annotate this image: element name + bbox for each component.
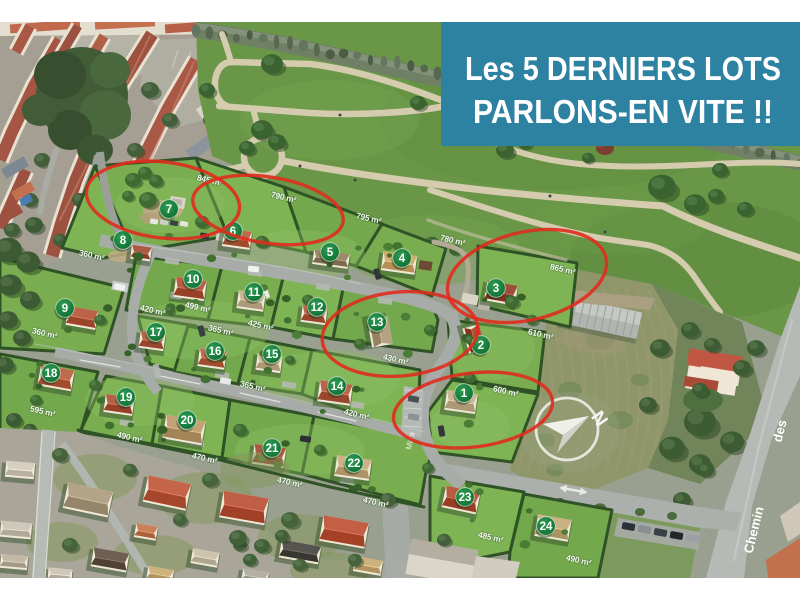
svg-text:24: 24 [540, 521, 553, 533]
svg-text:3: 3 [493, 283, 499, 295]
svg-text:17: 17 [150, 327, 163, 339]
svg-text:PARLONS-EN VITE !!: PARLONS-EN VITE !! [473, 93, 773, 130]
svg-text:10: 10 [187, 274, 200, 286]
svg-text:18: 18 [45, 368, 58, 380]
svg-text:Les 5 DERNIERS LOTS: Les 5 DERNIERS LOTS [465, 50, 781, 87]
svg-text:22: 22 [348, 458, 361, 470]
svg-text:9: 9 [62, 303, 68, 315]
svg-text:21: 21 [266, 443, 279, 455]
svg-text:4: 4 [399, 253, 406, 265]
svg-text:12: 12 [311, 302, 324, 314]
svg-text:15: 15 [266, 349, 279, 361]
svg-text:8: 8 [120, 235, 127, 247]
svg-text:20: 20 [181, 415, 194, 427]
svg-text:2: 2 [478, 340, 484, 352]
svg-text:5: 5 [327, 247, 334, 259]
svg-text:19: 19 [120, 392, 133, 404]
svg-text:13: 13 [371, 317, 384, 329]
svg-text:23: 23 [459, 492, 472, 504]
svg-text:1: 1 [461, 388, 468, 400]
svg-text:14: 14 [331, 381, 344, 393]
svg-text:16: 16 [209, 346, 222, 358]
svg-text:11: 11 [248, 287, 261, 299]
svg-text:7: 7 [166, 204, 172, 216]
